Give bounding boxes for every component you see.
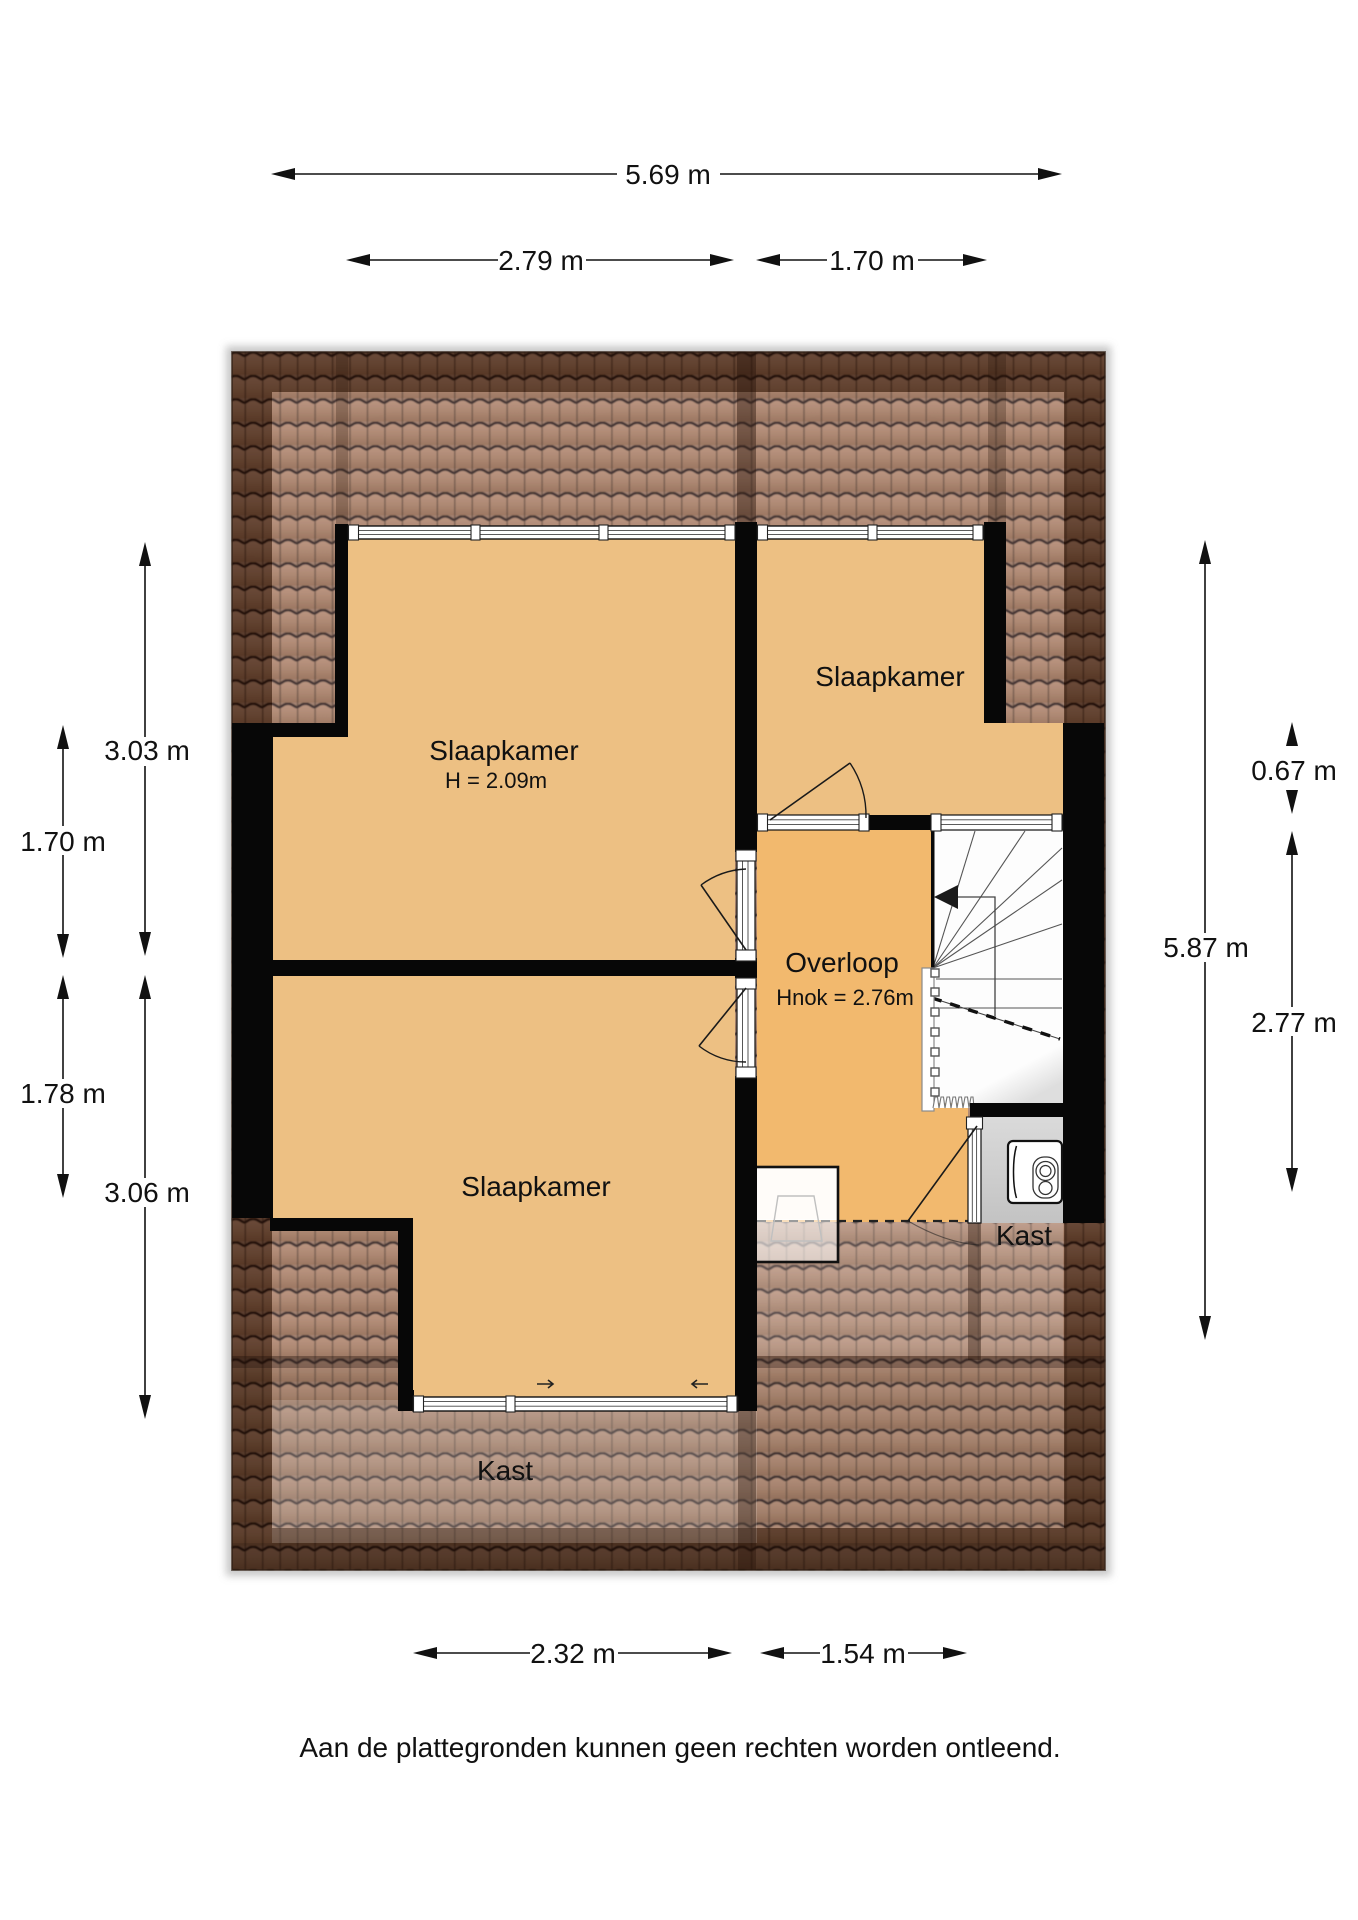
svg-text:5.87 m: 5.87 m	[1163, 932, 1249, 963]
svg-text:Aan de plattegronden kunnen ge: Aan de plattegronden kunnen geen rechten…	[299, 1732, 1060, 1763]
svg-text:Overloop: Overloop	[785, 947, 899, 978]
svg-text:0.67 m: 0.67 m	[1251, 755, 1337, 786]
svg-text:1.70 m: 1.70 m	[829, 245, 915, 276]
svg-text:1.78 m: 1.78 m	[20, 1078, 106, 1109]
svg-text:Kast: Kast	[996, 1220, 1052, 1251]
svg-text:2.77 m: 2.77 m	[1251, 1007, 1337, 1038]
svg-text:Kast: Kast	[477, 1455, 533, 1486]
svg-text:Hnok = 2.76m: Hnok = 2.76m	[776, 985, 914, 1010]
svg-text:Slaapkamer: Slaapkamer	[815, 661, 964, 692]
svg-text:H = 2.09m: H = 2.09m	[445, 768, 547, 793]
svg-text:5.69 m: 5.69 m	[625, 159, 711, 190]
svg-text:Slaapkamer: Slaapkamer	[461, 1171, 610, 1202]
svg-text:1.70 m: 1.70 m	[20, 826, 106, 857]
svg-text:Slaapkamer: Slaapkamer	[429, 735, 578, 766]
svg-text:2.79 m: 2.79 m	[498, 245, 584, 276]
svg-text:3.06 m: 3.06 m	[104, 1177, 190, 1208]
svg-text:3.03 m: 3.03 m	[104, 735, 190, 766]
svg-text:2.32 m: 2.32 m	[530, 1638, 616, 1669]
svg-text:1.54 m: 1.54 m	[820, 1638, 906, 1669]
